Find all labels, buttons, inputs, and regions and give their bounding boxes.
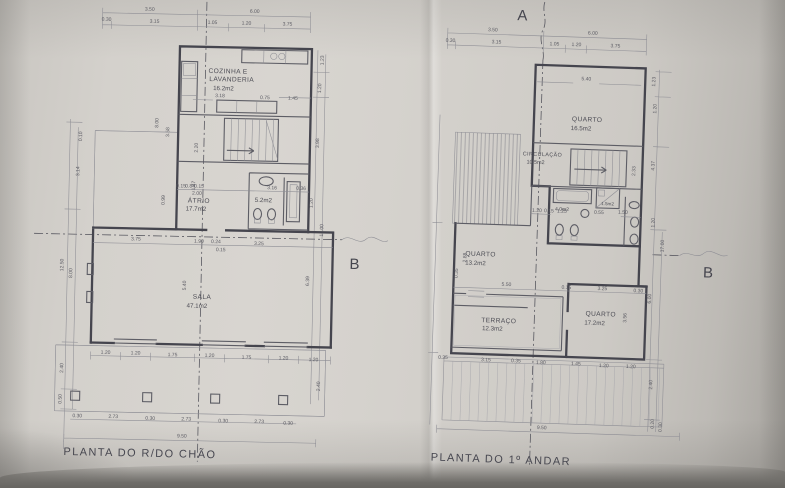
dim: 1.05 (549, 41, 559, 47)
dim: 1.75 (242, 355, 252, 361)
bathroom-fixtures (552, 186, 640, 246)
roof-hatch-area (452, 132, 520, 225)
dim: 0.30 (633, 288, 643, 294)
dim: 3.25 (254, 241, 264, 247)
dim: 5.50 (501, 282, 511, 288)
dim: 1.90 (194, 239, 204, 245)
dim: 2.73 (254, 419, 264, 425)
dim: 1.75 (168, 352, 178, 358)
room-label: COZINHA E (208, 68, 247, 76)
dim: 0.35 (511, 358, 521, 364)
room-area: 5.2m2 (255, 197, 273, 204)
dim: 0.15 (216, 247, 226, 253)
dim: 12.50 (59, 258, 65, 271)
right-dimension-chain: 1.23 1.20 4.37 1.20 17.00 6.00 2.40 0.20… (640, 70, 676, 433)
dim: 3.75 (131, 236, 141, 242)
section-line-b (653, 255, 680, 256)
dim: 2.73 (181, 416, 191, 422)
room-label: ÁTRIO (188, 196, 210, 205)
room-area: 17.7m2 (186, 205, 207, 212)
dim: 1.20 (626, 364, 636, 370)
room-area: 12.3m2 (482, 325, 503, 333)
dim: 1.20 (101, 350, 111, 356)
dim: 1.20 (317, 83, 323, 93)
dim: 3.98 (315, 138, 321, 148)
dim: 2.33 (631, 166, 637, 176)
dim: 9.50 (537, 425, 547, 431)
section-line-b-wave (342, 237, 388, 242)
dim: 3.18 (215, 93, 225, 99)
dim: 6.00 (250, 9, 260, 15)
room-area: 17.2m2 (584, 320, 605, 328)
room-label: QUARTO (572, 116, 603, 124)
dim: 0.30 (283, 421, 293, 427)
room-area: 1.5m2 (601, 201, 614, 206)
dim: 17.00 (319, 224, 325, 237)
dim: 3.56 (622, 313, 628, 323)
dim: 1.20 (571, 42, 581, 48)
dim: 8.00 (154, 118, 160, 128)
dim: 0.30 (658, 422, 664, 432)
mid-dimension-chain: 5.50 0.15 3.25 0.30 (453, 280, 646, 294)
dim: 0.30 (446, 38, 456, 44)
ground-floor-plan: B 3.50 6.00 0.30 3.15 1.05 1.20 3.75 0.1… (19, 0, 401, 480)
room-label: SALA (193, 294, 212, 301)
photo-of-floor-plans: { "colors": { "paper": "#d5d2cd", "ink":… (0, 0, 785, 488)
dim: 0.15 (544, 208, 554, 214)
wc-dimensions: 0.15 0.84 0.15 3.16 0.36 2.00 (176, 183, 309, 199)
dim: 1.20 (309, 357, 319, 363)
room-label: QUARTO (465, 251, 496, 259)
dim: 2.00 (192, 191, 202, 197)
dim: 3.50 (488, 27, 498, 33)
dim: 2.73 (108, 414, 118, 420)
dim: 1.23 (320, 55, 326, 65)
staircase (570, 149, 627, 187)
dim: 1.20 (652, 104, 658, 114)
dim: 8.00 (68, 268, 74, 278)
dim: 2.40 (316, 381, 322, 391)
axis-line-vertical (529, 60, 543, 468)
room-label: QUARTO (585, 311, 616, 319)
dim: 0.35 (438, 355, 448, 361)
dim: 6.39 (305, 276, 311, 286)
dim: 1.20 (532, 208, 542, 214)
dim: 1.20 (599, 363, 609, 369)
room-label: TERRAÇO (481, 317, 516, 325)
dim: 5.40 (182, 280, 188, 290)
dim: 5.40 (581, 76, 591, 82)
dim: 0.15 (561, 285, 571, 291)
dim: 0.36 (296, 186, 306, 192)
dim: 3.15 (150, 19, 160, 25)
section-marker-b: B (703, 264, 714, 281)
dim: 1.20 (650, 218, 656, 228)
ground-floor-drawing: B 3.50 6.00 0.30 3.15 1.05 1.20 3.75 0.1… (19, 0, 401, 480)
dim: 4.37 (650, 161, 656, 171)
dim: 17.00 (660, 240, 666, 253)
dim: 3.75 (610, 43, 620, 49)
dim: 0.99 (161, 195, 167, 205)
room-area: 16.5m2 (571, 125, 592, 133)
room-label: CIRCULAÇÃO (523, 150, 563, 158)
room-area: 10.5m2 (526, 160, 544, 167)
dim: 0.75 (260, 95, 270, 101)
dim: 3.75 (283, 21, 293, 27)
bath-dimensions: 1.20 0.15 1.25 0.55 1.50 (531, 207, 641, 218)
dim: 0.30 (72, 413, 82, 419)
dim: 2.88 (462, 252, 468, 262)
staircase (224, 118, 279, 161)
dim: 1.45 (571, 361, 581, 367)
room-area: 13.2m2 (465, 260, 486, 268)
section-marker-a: A (517, 7, 528, 24)
room-area: 47.1m2 (186, 303, 207, 310)
dim: 1.45 (288, 96, 298, 102)
dim: 2.40 (648, 380, 654, 390)
top-dimension-chains: 3.50 6.00 0.30 3.15 1.05 1.20 3.75 (445, 26, 647, 56)
dim: 1.05 (208, 20, 218, 26)
room-area: 4.0m2 (555, 206, 569, 212)
dim: 1.20 (279, 355, 289, 361)
top-dimension-chains: 3.50 6.00 0.30 3.15 1.05 1.20 3.75 (101, 6, 310, 33)
dim: 3.50 (145, 7, 155, 13)
dim: 1.80 (536, 360, 546, 366)
dim: 0.30 (218, 418, 228, 424)
section-line-b-wave (680, 250, 728, 257)
dim: 3.15 (492, 39, 502, 45)
dim: 3.25 (597, 286, 607, 292)
dim: 0.30 (145, 416, 155, 422)
dim: 0.15 (194, 184, 204, 190)
walls (86, 44, 337, 347)
dim: 1.20 (131, 350, 141, 356)
section-marker-b: B (349, 256, 359, 273)
first-floor-drawing: A B 3.50 6.00 0.30 3.15 1.05 1.20 3.75 (420, 0, 780, 486)
dim: 2.40 (59, 363, 65, 373)
dim: 0.50 (57, 394, 63, 404)
dim: 3.14 (75, 166, 81, 176)
dim: 1.20 (205, 353, 215, 359)
dim: 2.20 (194, 143, 200, 153)
dim: 9.50 (177, 433, 187, 439)
dim: 1.20 (242, 21, 252, 27)
room-area: 16.2m2 (213, 85, 234, 92)
dim: 0.35 (454, 268, 460, 278)
dim: 0.24 (211, 239, 221, 245)
dim: 0.20 (650, 419, 656, 429)
dim: 0.30 (102, 17, 112, 23)
dim: 3.15 (481, 357, 491, 363)
dim: 3.16 (267, 185, 277, 191)
dim: 1.23 (651, 77, 657, 87)
dim: 0.55 (594, 210, 604, 216)
dim: 6.00 (588, 30, 598, 36)
first-floor-plan: A B 3.50 6.00 0.30 3.15 1.05 1.20 3.75 (420, 0, 780, 486)
terrace-grid-upper-left (93, 131, 178, 230)
axis-line-vertical (197, 2, 207, 462)
section-line-b (34, 233, 342, 239)
room-label: LAVANDERIA (209, 76, 254, 84)
dim: 0.10 (78, 131, 84, 141)
dim: 6.00 (647, 294, 653, 304)
dim: 1.50 (618, 210, 628, 216)
